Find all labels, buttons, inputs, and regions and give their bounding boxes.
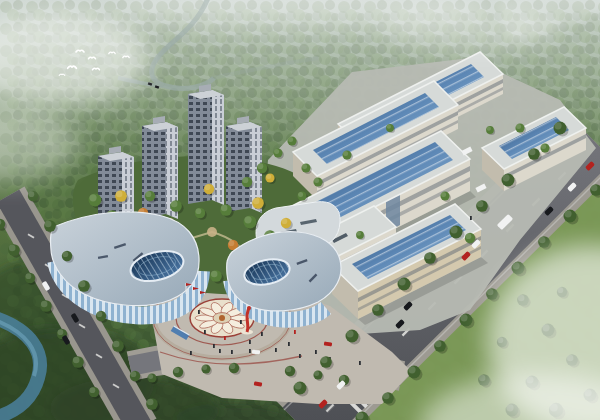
- rendering-canvas: [0, 0, 600, 420]
- curved-commercial-building-right: [227, 232, 341, 320]
- car: [252, 350, 260, 354]
- curved-commercial-building-left: [51, 212, 201, 315]
- aerial-rendering: [0, 0, 600, 420]
